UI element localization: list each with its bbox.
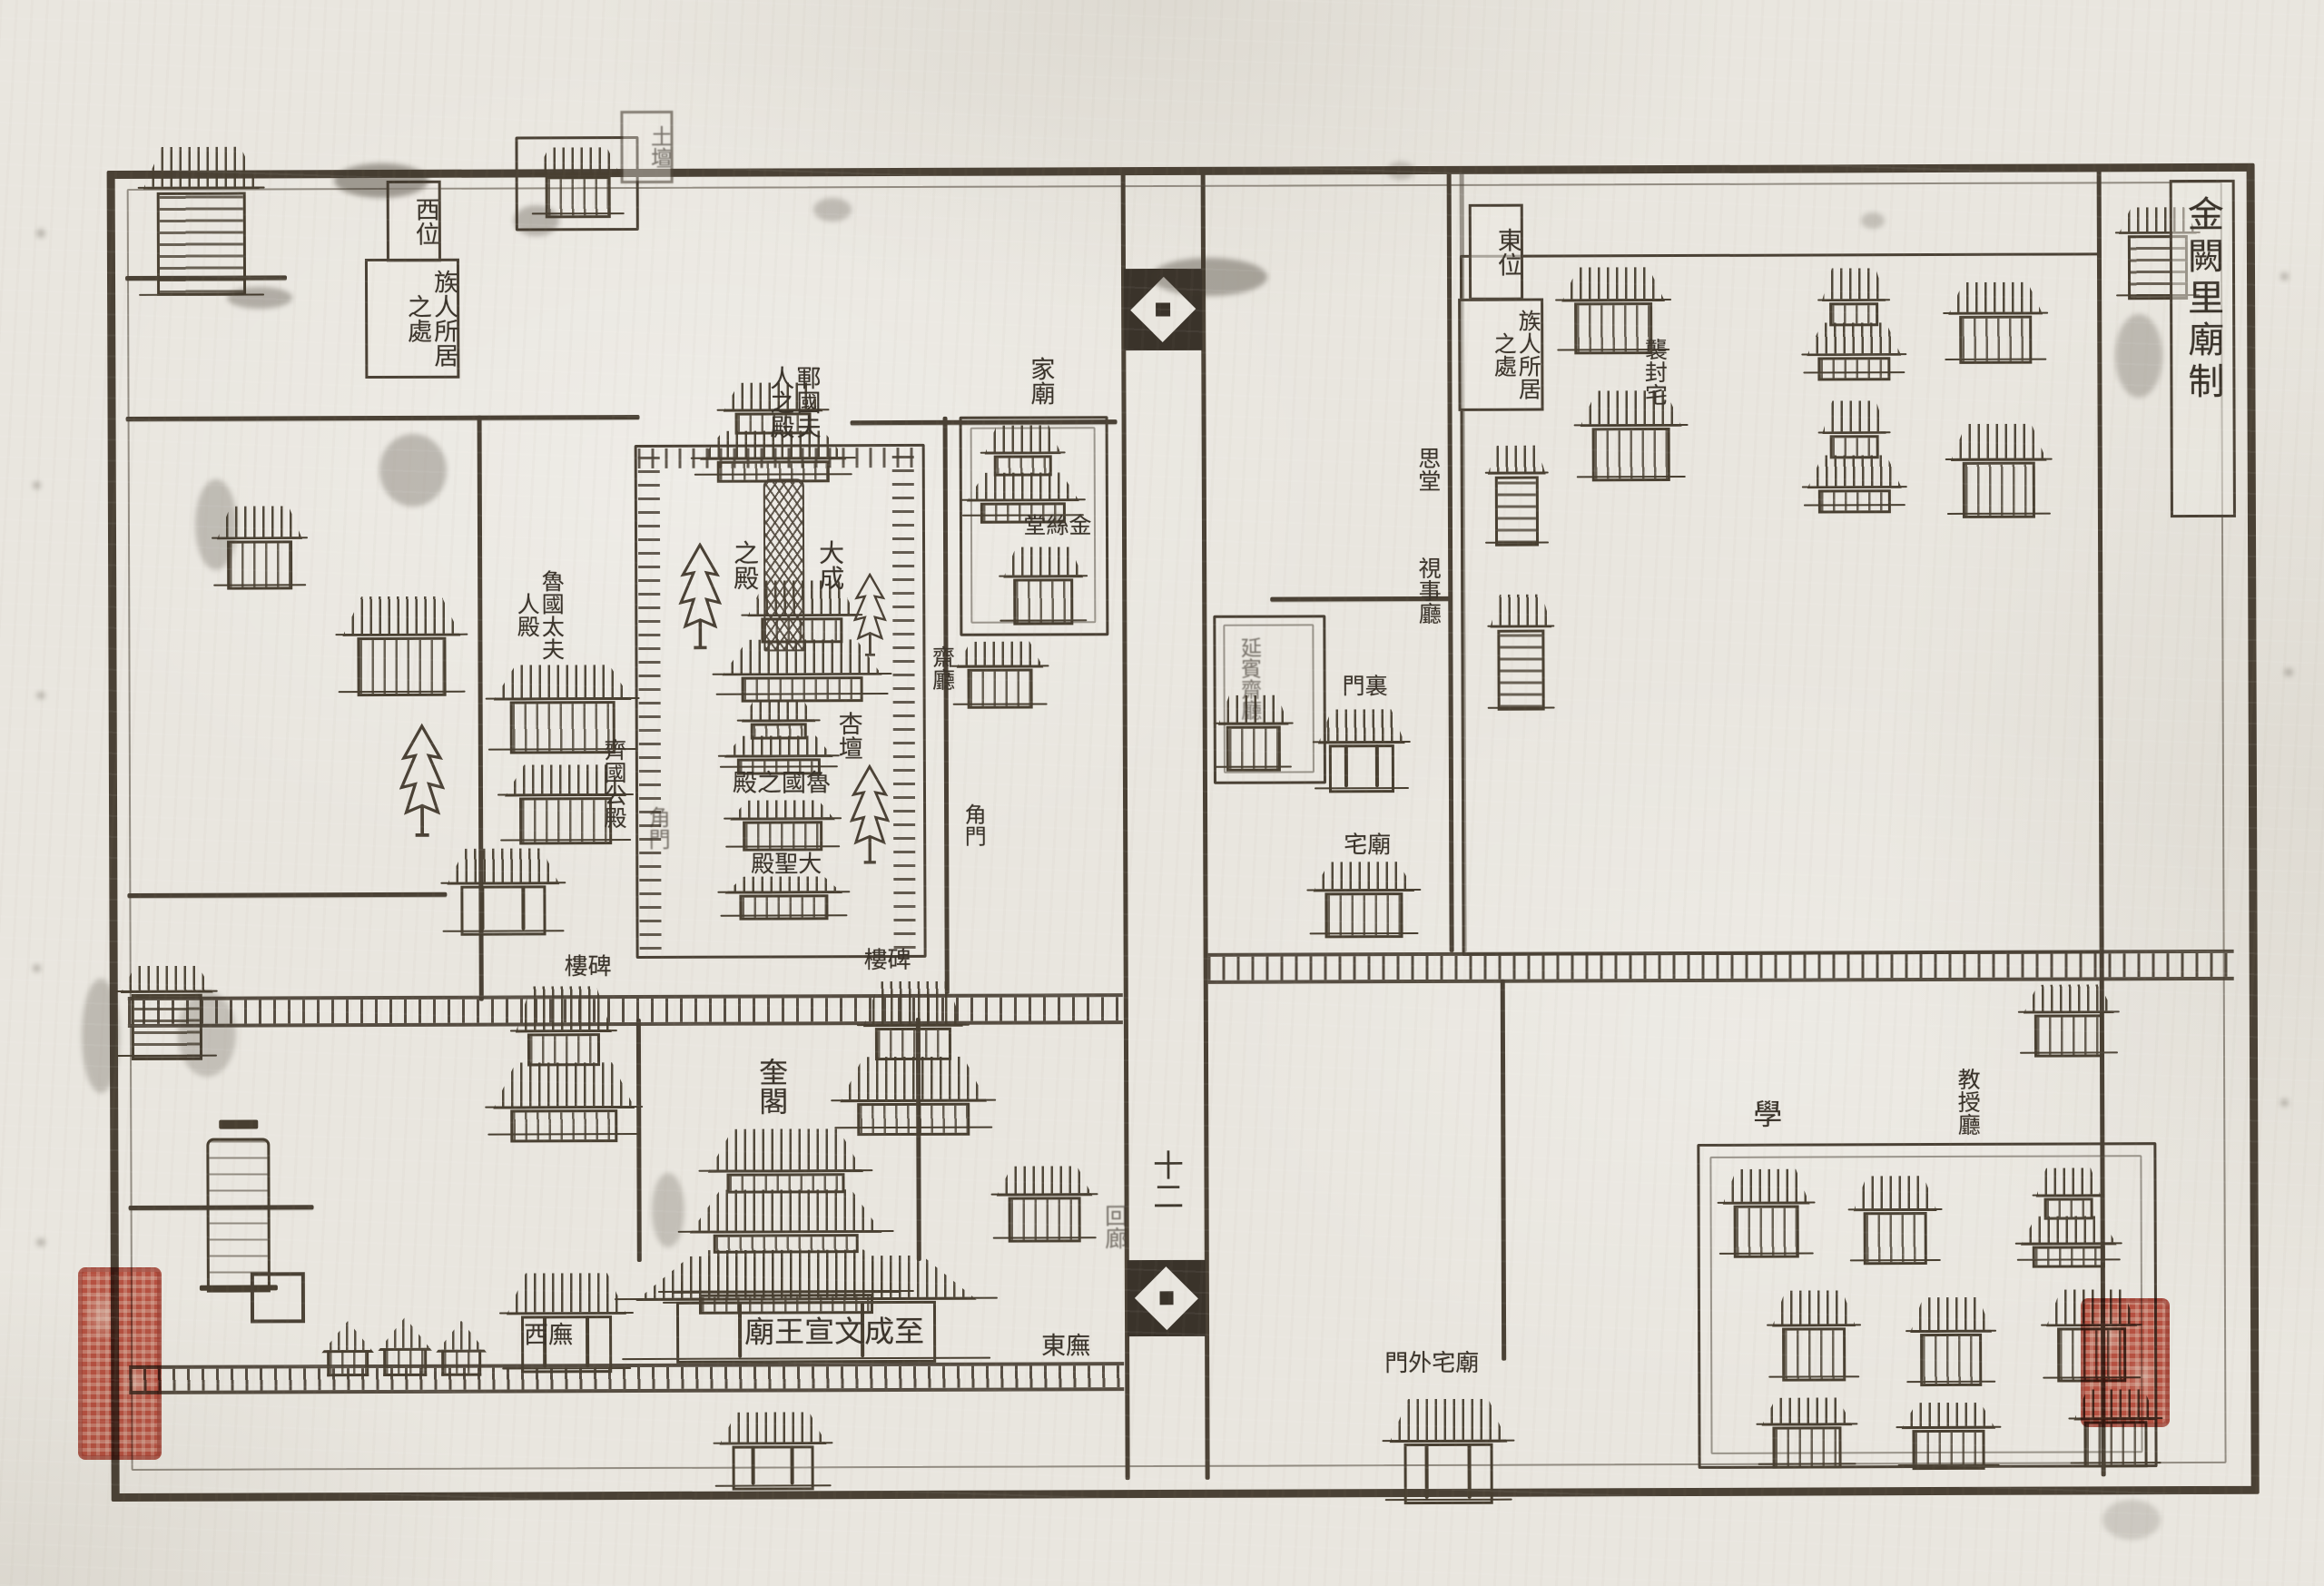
tall-altar-structure <box>199 1119 278 1292</box>
label-luguo-hall: 殿之國魯 <box>726 769 837 798</box>
fishtail-ornament-bottom <box>1128 1260 1206 1336</box>
collector-seal-right <box>2081 1298 2170 1427</box>
ink-stain <box>514 205 559 236</box>
label-dasheng-hall: 殿聖大 <box>739 851 833 878</box>
label-jiaoshou-ting: 教授廳 <box>1936 1054 1980 1148</box>
wall-vline <box>636 1019 642 1262</box>
ink-stain <box>1387 162 1414 180</box>
label-hui-lang: 回廊 <box>1088 1177 1127 1276</box>
ink-stain <box>813 198 852 222</box>
label-li-men: 門裏 <box>1329 669 1402 702</box>
ink-stain <box>2102 1500 2161 1540</box>
label-bei-lou-east: 樓碑 <box>851 947 925 974</box>
school-hall-2 <box>1853 1176 1936 1265</box>
ink-stain <box>2284 668 2293 676</box>
corner-tower-northwest <box>143 146 261 299</box>
label-xue: 學 <box>1744 1091 1791 1138</box>
label-jiao-men-east: 角門 <box>951 796 984 854</box>
ink-stain <box>2280 272 2289 281</box>
ink-stain <box>652 1173 684 1247</box>
ink-stain <box>33 964 41 972</box>
label-bei-lou-west: 樓碑 <box>553 953 624 980</box>
title-cartouche: 金闕里廟制 <box>2170 180 2236 517</box>
label-kui-ge: 奎閣 <box>740 1032 787 1139</box>
east-flank-building <box>996 1166 1092 1242</box>
dasheng-hall-building <box>724 876 842 920</box>
woodblock-plate: 西位族人所居之處土壇鄆國夫人之殿大成之殿杏壇殿之國魯殿聖大魯國太夫人殿齊國公殿家… <box>0 0 2324 1586</box>
miaozhai-outer-gate-building <box>1389 1399 1507 1504</box>
stele-tower-west <box>493 986 635 1139</box>
west-court-gate <box>447 848 559 935</box>
collector-seal-left <box>78 1267 162 1460</box>
xifengzhai-hall-5 <box>1807 400 1901 509</box>
label-miaozhai-waimen: 門外宅廟 <box>1367 1346 1496 1381</box>
xingtan-pavilion <box>724 700 833 771</box>
sitang-building <box>1488 446 1546 547</box>
label-yanbin-zhai: 延賓齋廳 <box>1219 621 1259 737</box>
school-hall-1 <box>1722 1169 1809 1258</box>
ink-stain <box>82 979 120 1093</box>
label-miao-zhai: 宅廟 <box>1329 829 1405 862</box>
xifengzhai-hall-6 <box>1951 424 2047 518</box>
label-west-clan-residence: 族人所居之處 <box>365 259 459 379</box>
limen-gate <box>1318 709 1405 793</box>
buildings-layer <box>0 0 2321 4</box>
ink-stain <box>334 163 428 198</box>
luguo-hall-building <box>730 800 835 851</box>
ink-stain <box>2280 1098 2289 1107</box>
label-dong-wei: 東位 <box>1469 204 1523 300</box>
labels-layer: 西位族人所居之處土壇鄆國夫人之殿大成之殿杏壇殿之國魯殿聖大魯國太夫人殿齊國公殿家… <box>0 0 2321 4</box>
pine-tree-1 <box>673 543 727 650</box>
label-jiao-men-west: 角門 <box>635 799 668 857</box>
ink-stain <box>178 991 236 1077</box>
ink-stain <box>36 229 45 238</box>
school-hall-5 <box>1910 1297 1992 1386</box>
temple-walls-layer <box>0 0 2321 4</box>
jiamiao-main-hall <box>967 425 1079 519</box>
label-dong-wu: 東廡 <box>1026 1329 1106 1364</box>
school-hall-7 <box>1761 1397 1852 1468</box>
label-qiguo-gong-hall: 齊國公殿 <box>588 724 626 842</box>
miaozhai-building <box>1313 862 1414 938</box>
label-jia-miao: 家廟 <box>1015 352 1053 409</box>
school-hall-3 <box>2020 1167 2116 1264</box>
pine-tree-4 <box>399 718 445 843</box>
ink-stain <box>1151 258 1267 296</box>
label-si-tang: 思堂 <box>1403 438 1441 500</box>
xifengzhai-hall-2 <box>1807 268 1901 377</box>
school-hall-8 <box>1901 1403 1995 1470</box>
storehouse-3 <box>436 1321 487 1377</box>
shishiting-building <box>1490 595 1551 713</box>
ink-stain <box>2115 314 2162 398</box>
west-hall <box>342 596 460 696</box>
wall-hatch-v <box>638 450 662 950</box>
ink-stain <box>1861 212 1885 229</box>
fishtail-diamond <box>1135 1266 1198 1330</box>
ink-stain <box>33 481 41 489</box>
label-zhai-ting: 齋廳 <box>920 635 954 702</box>
stele-tower-east <box>840 981 988 1133</box>
pine-tree-3 <box>850 754 890 874</box>
wall-band <box>1208 950 2234 984</box>
ink-stain <box>1046 514 1066 528</box>
label-dacheng-right: 大成 <box>809 531 843 598</box>
ink-stain <box>195 479 237 570</box>
label-dacheng-left: 之殿 <box>724 532 758 599</box>
ink-stain <box>36 692 45 699</box>
outer-south-gate <box>719 1412 826 1490</box>
storehouse-2 <box>378 1317 432 1377</box>
wall-hatch-v <box>892 449 916 949</box>
title-text: 金闕里廟制 <box>2176 195 2230 404</box>
ink-stain <box>379 434 447 507</box>
school-hall-4 <box>1772 1290 1856 1381</box>
zhaiting-building <box>956 641 1043 708</box>
label-tu-tan: 土壇 <box>620 111 673 183</box>
xifengzhai-hall-3 <box>1948 282 2043 364</box>
storehouse-1 <box>321 1321 374 1377</box>
label-luguo-taifuren-hall: 魯國太夫人殿 <box>502 563 564 666</box>
label-yunguo-furen-hall: 鄆國夫人之殿 <box>743 359 819 444</box>
page-number: 十二 <box>1143 1149 1187 1267</box>
label-shishi-ting: 視事廳 <box>1401 544 1441 636</box>
ink-stain <box>36 1238 45 1246</box>
label-xi-wu: 西廡 <box>508 1318 588 1353</box>
label-east-clan-residence: 族人所居之處 <box>1458 299 1543 411</box>
small-square-enclosure <box>251 1272 305 1323</box>
label-xifeng-zhai: 襲封宅 <box>1627 325 1667 418</box>
juniper-tree <box>763 478 806 651</box>
label-xing-tan: 杏壇 <box>829 704 862 767</box>
pine-tree-2 <box>851 573 889 656</box>
label-main-gate-plaque: 廟王宣文成至 <box>701 1312 968 1353</box>
jinsitang-building <box>1003 547 1083 625</box>
scanned-book-page: 西位族人所居之處土壇鄆國夫人之殿大成之殿杏壇殿之國魯殿聖大魯國太夫人殿齊國公殿家… <box>0 0 2324 1586</box>
trees-layer <box>0 0 2321 4</box>
ink-stain <box>227 287 292 309</box>
jiaoshouting-building <box>2024 984 2114 1057</box>
